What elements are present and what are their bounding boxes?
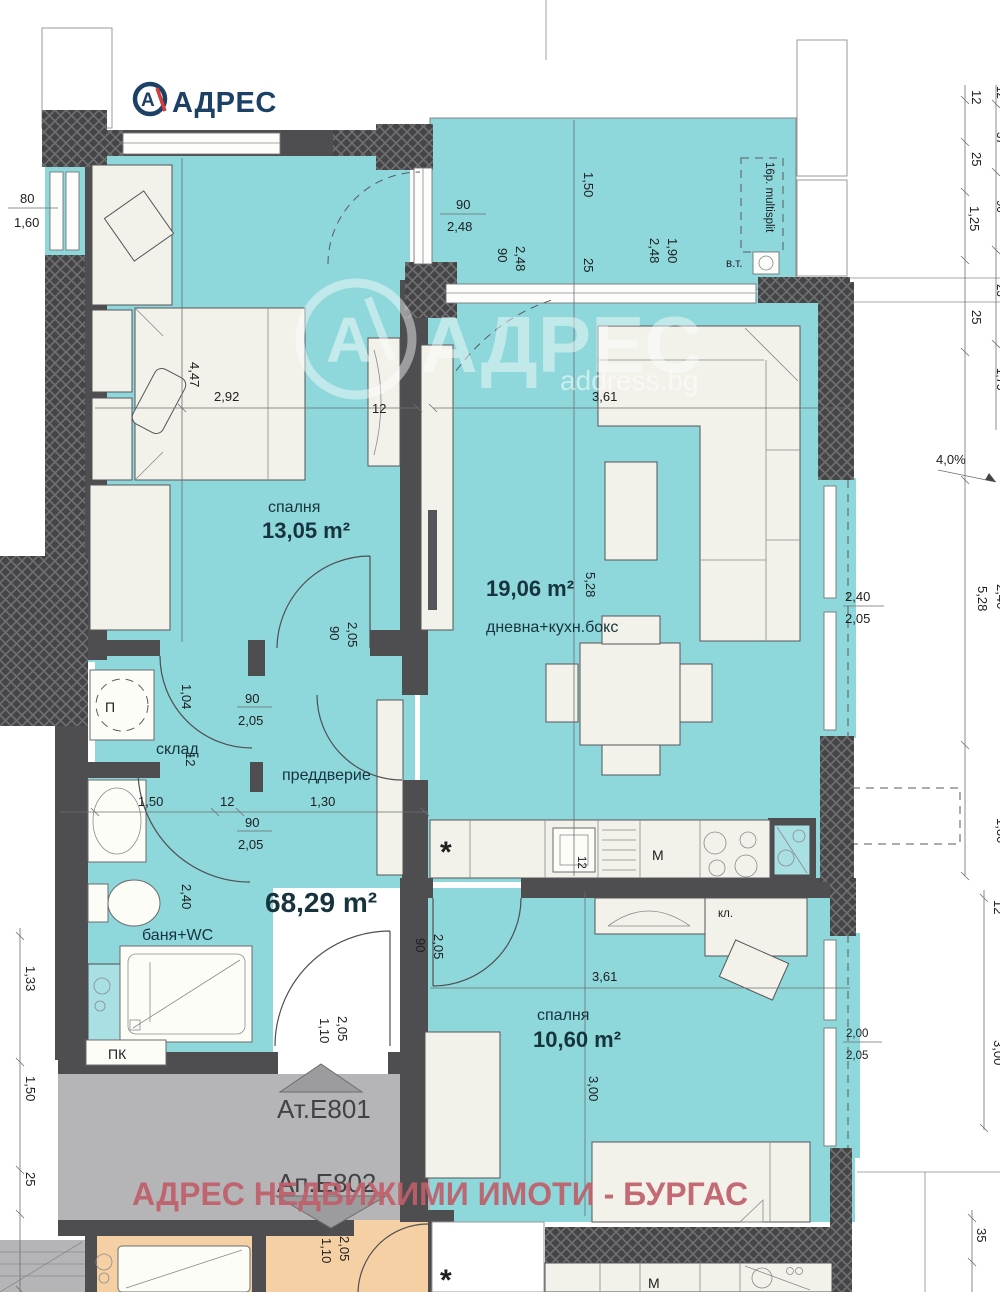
washer-label: П — [105, 699, 115, 715]
dim-entry-110: 1,10 — [317, 1018, 332, 1043]
dim-terwin-190: 1,90 — [665, 238, 680, 263]
logo-mark-letter: А — [141, 90, 155, 111]
dim-entry-205: 2,05 — [335, 1016, 350, 1041]
dim-bed1-width: 2,92 — [214, 389, 239, 404]
storage-name: склад — [156, 741, 199, 758]
bedroom1-name: спалня — [268, 499, 320, 516]
dim-b2-300: 3,00 — [991, 1040, 1000, 1065]
unit-label-e801: Ат.Е801 — [277, 1094, 371, 1124]
dim-slope: 4,0% — [936, 452, 966, 467]
dim-ter-25: 25 — [581, 258, 596, 272]
bedroom2-area: 10,60 m² — [533, 1027, 621, 1052]
dim-ter-150: 1,50 — [581, 172, 596, 197]
dim-rr-23: 23 — [994, 284, 1000, 297]
dim-r-25a: 25 — [969, 152, 984, 166]
dim-terdoor-248: 2,48 — [513, 246, 528, 271]
closet-label: кл. — [718, 908, 733, 920]
dim-l-133: 1,33 — [23, 966, 38, 991]
dim-leftwin-80: 80 — [20, 191, 34, 206]
dim-bed2-depth: 3,00 — [586, 1076, 601, 1101]
dim-halldoor-90: 90 — [327, 626, 342, 640]
kitchen2-m-label: M — [648, 1275, 660, 1291]
dim-rr-37: 37 — [994, 132, 1000, 145]
kitchen-counter: * M — [430, 820, 810, 878]
dim-r-12: 12 — [969, 90, 984, 104]
bath-name: баня+WC — [142, 927, 213, 944]
dim-ter2-240: 2,40 — [845, 589, 870, 604]
logo-brand-text: АДРЕС — [172, 87, 277, 119]
dim-r-25b: 25 — [969, 310, 984, 324]
kitchen2-star: * — [440, 1264, 452, 1292]
agency-banner: АДРЕС НЕДВИЖИМИ ИМОТИ - БУРГАС — [132, 1176, 748, 1212]
dim-bathdoor-90: 90 — [245, 815, 259, 830]
dim-r-528: 5,28 — [975, 586, 990, 611]
dim-bathdoor-205: 2,05 — [238, 837, 263, 852]
dim-bed2door-90: 90 — [413, 938, 428, 952]
dim-stdoor-90: 90 — [245, 691, 259, 706]
dim-r-125: 1,25 — [967, 206, 982, 231]
dim-apt2door-110: 1,10 — [319, 1238, 334, 1263]
dim-hall-12: 12 — [220, 794, 234, 809]
dim-b2-35: 35 — [974, 1228, 989, 1242]
hall-name: преддверие — [282, 767, 371, 784]
dim-halldoor-205: 2,05 — [345, 622, 360, 647]
dim-living-depth: 5,28 — [583, 572, 598, 597]
dim-rr-90: 90 — [994, 200, 1000, 213]
dim-rr-12: 12 — [994, 86, 1000, 99]
dim-l-25: 25 — [23, 1172, 38, 1186]
dim-hall-150: 1,50 — [138, 794, 163, 809]
brand-logo: А АДРЕС — [126, 74, 291, 120]
vt-label: в.т. — [726, 258, 743, 270]
dim-bed2-width: 3,61 — [592, 969, 617, 984]
dim-win-248: 2,48 — [447, 219, 472, 234]
dim-rr-175: 1,75 — [994, 368, 1000, 390]
bedroom1-area: 13,05 m² — [262, 518, 350, 543]
kitchen-m-label: M — [652, 847, 664, 863]
dim-bath-240: 2,40 — [179, 884, 194, 909]
dim-b2-12: 12 — [991, 900, 1000, 914]
living-area: 19,06 m² — [486, 576, 574, 601]
dim-wardrobe-12: 12 — [372, 401, 386, 416]
dim-r-180: 1,80 — [994, 818, 1000, 843]
floor-plan-page: 16р. multisplit в.т. * M кл. П — [0, 0, 1000, 1292]
dim-bed2door-205: 2,05 — [431, 934, 446, 959]
dim-bed1-depth: 4,47 — [187, 362, 202, 387]
kitchen-star: * — [440, 836, 452, 869]
living-name: дневна+кухн.бокс — [486, 619, 618, 636]
pk-label: ПК — [108, 1046, 127, 1062]
dim-r-240: 2,40 — [994, 584, 1000, 609]
dim-ter2-205: 2,05 — [845, 611, 870, 626]
dim-apt2door-205: 2,05 — [337, 1236, 352, 1261]
dim-b2win-205: 2,05 — [846, 1050, 868, 1062]
dim-counter-12: 12 — [575, 856, 587, 869]
dim-l-150: 1,50 — [23, 1076, 38, 1101]
floor-plan-drawing: 16р. multisplit в.т. * M кл. П — [0, 0, 1000, 1292]
dim-win-90: 90 — [456, 197, 470, 212]
dim-terwin-248: 2,48 — [647, 238, 662, 263]
dim-leftwin-160: 1,60 — [14, 215, 39, 230]
watermark-mark: А — [326, 304, 372, 376]
dim-hall-130: 1,30 — [310, 794, 335, 809]
multisplit-label: 16р. multisplit — [763, 162, 775, 233]
dim-b2win-200: 2,00 — [846, 1028, 868, 1040]
watermark-site: address.bg — [560, 365, 699, 396]
total-area: 68,29 m² — [265, 887, 377, 918]
bedroom2-name: спалня — [537, 1007, 589, 1024]
dim-st-104: 1,04 — [179, 684, 194, 709]
fixtures-storage: П — [90, 670, 154, 740]
dim-stdoor-205: 2,05 — [238, 713, 263, 728]
dim-terdoor-90: 90 — [495, 248, 510, 262]
